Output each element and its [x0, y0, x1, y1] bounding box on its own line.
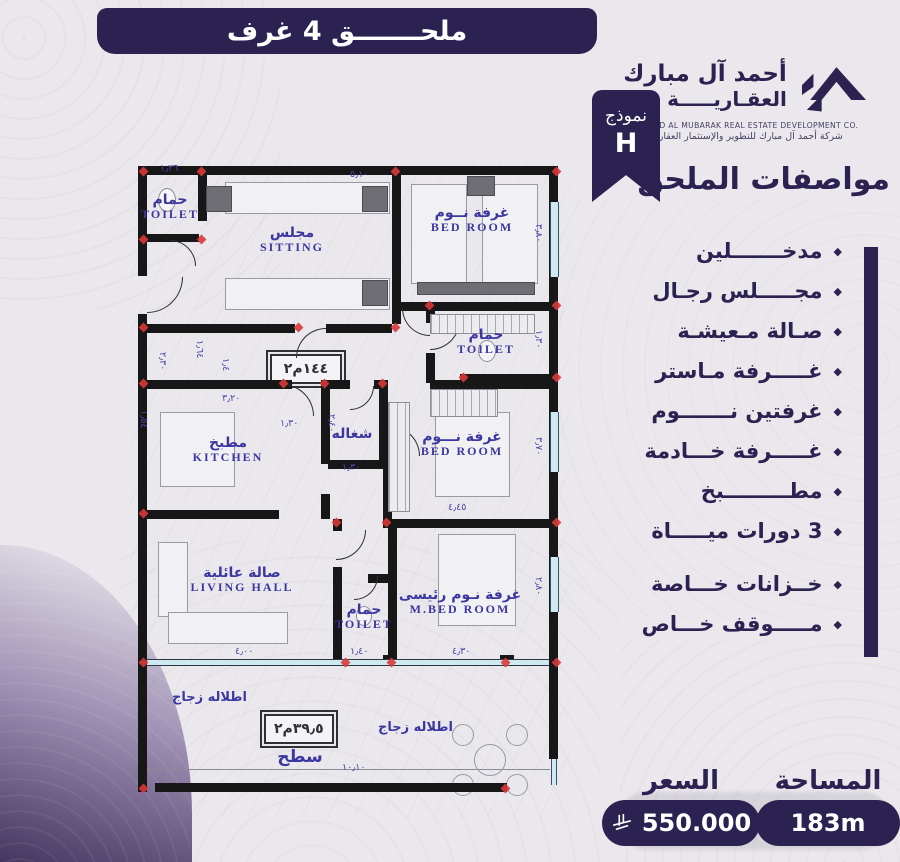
diamond-bullet-icon: ◆ [834, 366, 842, 377]
furniture-dresser [417, 282, 535, 295]
room-name-arabic: مجلس [260, 225, 324, 241]
spec-item-9: ◆خــزانات خـــاصة [602, 569, 842, 599]
floor-plan: ١٤٤م٢ ٣٩٫٥م٢ اطلاله زجاج اطلاله زجاج حما… [130, 162, 570, 817]
spec-item-10: ◆مـــــوقف خـــاص [602, 609, 842, 639]
wall [426, 353, 435, 383]
dimension-label-13: ٢٫٤٠ [326, 414, 337, 432]
dimension-label-1: ١٫٣٦ [160, 163, 178, 174]
dimension-label-12: ١٫٣٠ [280, 418, 298, 429]
room-label-maid-room: شغاله [332, 426, 373, 442]
wall [549, 659, 558, 759]
dimension-label-14: ١٫٣٠ [342, 462, 360, 473]
room-label-toilet-mid: حمامTOILET [457, 327, 515, 357]
room-name-arabic: سطح [277, 748, 323, 768]
spec-item-label: مجـــــلس رجـال [652, 279, 822, 303]
room-name-english: BED ROOM [421, 445, 503, 459]
room-label-bedroom-top: غرفة نــومBED ROOM [431, 205, 513, 235]
dimension-label-9: ١٫٥٤ [138, 410, 149, 428]
wall [147, 324, 295, 333]
spec-item-7: ◆مطـــــــــبخ [602, 476, 842, 506]
specs-accent-bar [864, 247, 878, 657]
door-arc [336, 530, 366, 560]
dimension-label-4: ١٫٣٠ [533, 330, 544, 348]
dimension-label-2: ٥٫١٠ [350, 169, 368, 180]
room-label-kitchen: مطبخKITCHEN [193, 435, 264, 465]
glass-view-label-1: اطلاله زجاج [172, 690, 247, 705]
room-name-arabic: حمام [335, 602, 393, 618]
wall [326, 324, 392, 333]
dimension-label-5: ٣٫٧٠ [533, 437, 544, 455]
wall [392, 175, 401, 324]
price-pill: 550.000 [602, 800, 760, 846]
terrace-chair [506, 724, 528, 746]
brand-name-arabic-line1: أحمد آل مبارك [623, 62, 787, 88]
room-name-english: TOILET [457, 343, 515, 357]
red-marker [391, 323, 401, 333]
terrace-railing [551, 759, 557, 785]
red-marker [294, 323, 304, 333]
dimension-label-15: ٤٫٤٥ [448, 502, 466, 513]
wall [155, 783, 507, 792]
area-label: المساحة [756, 766, 900, 796]
dimension-label-11: ٣٫٢٠ [222, 393, 240, 404]
wall [383, 519, 549, 528]
window [550, 202, 559, 277]
spec-item-label: مـــــوقف خـــاص [642, 612, 823, 636]
room-name-arabic: حمام [457, 327, 515, 343]
spec-item-5: ◆غرفتين نـــــــوم [602, 396, 842, 426]
dimension-label-7: ١٫٦٤ [194, 340, 205, 358]
wall [138, 314, 147, 668]
room-name-english: M.BED ROOM [399, 603, 521, 617]
model-badge-label: نموذج [592, 106, 660, 126]
room-name-arabic: غرفة نـوم رئيسى [399, 587, 521, 603]
title-banner: ملحـــــــق 4 غرف [97, 8, 597, 54]
page-title: ملحـــــــق 4 غرف [227, 16, 467, 47]
spec-item-label: صـالة مـعيشـة [677, 319, 822, 343]
specs-heading: مواصفات الملحق [620, 162, 890, 197]
diamond-bullet-icon: ◆ [834, 286, 842, 297]
terrace-chair [506, 774, 528, 796]
diamond-bullet-icon: ◆ [834, 579, 842, 590]
wall [328, 380, 350, 389]
room-name-arabic: حمام [141, 192, 199, 208]
furniture-side-table [362, 186, 388, 212]
furniture-nightstand [467, 176, 495, 196]
wall [147, 380, 292, 389]
dimension-label-10: ١٫٤ [220, 358, 231, 371]
room-name-arabic: صالة عائلية [190, 565, 293, 581]
diamond-bullet-icon: ◆ [834, 246, 842, 257]
diamond-bullet-icon: ◆ [834, 326, 842, 337]
room-name-english: TOILET [335, 618, 393, 632]
dimension-label-18: ٤٫٣٠ [452, 646, 470, 657]
spec-item-label: غـــــرفة مـاستر [655, 359, 822, 383]
flyer-page: { "page": { "bg": "#eae8ec", "accent": "… [0, 0, 900, 862]
room-label-toilet-bottom: حمامTOILET [335, 602, 393, 632]
spec-item-label: غـــــرفة خـــادمة [644, 439, 822, 463]
window [550, 412, 559, 472]
dimension-label-6: ٢٫٨٠ [533, 577, 544, 595]
room-label-toilet-top: حمامTOILET [141, 192, 199, 222]
door-arc [402, 308, 430, 336]
door-arc [147, 277, 183, 313]
door-arc [350, 386, 374, 410]
door-arc [354, 576, 378, 600]
room-label-roof-terrace: سطح [277, 748, 323, 768]
spec-item-label: مطـــــــــبخ [701, 479, 823, 503]
wall [430, 380, 549, 389]
dimension-label-8: ٢٫٣٠ [157, 352, 168, 370]
glass-view-label-2: اطلاله زجاج [378, 720, 453, 735]
room-name-arabic: غرفة نــوم [431, 205, 513, 221]
spec-list: ◆مدخـــــــلين◆مجـــــلس رجـال◆صـالة مـع… [602, 236, 842, 649]
room-name-arabic: شغاله [332, 426, 373, 442]
price-value: 550.000 [642, 809, 751, 837]
spec-item-label: 3 دورات ميـــــاة [651, 519, 822, 543]
terrace-chair [452, 724, 474, 746]
furniture-sofa [158, 542, 188, 617]
diamond-bullet-icon: ◆ [834, 406, 842, 417]
door-arc [296, 328, 326, 358]
red-marker [197, 235, 207, 245]
room-name-english: KITCHEN [193, 451, 264, 465]
dimension-label-19: ١٠٫١٠ [342, 762, 366, 773]
diamond-bullet-icon: ◆ [834, 526, 842, 537]
model-badge-value: H [592, 128, 660, 159]
area-badge-roof-value: ٣٩٫٥م٢ [274, 721, 324, 737]
spec-item-label: غرفتين نـــــــوم [651, 399, 822, 423]
door-arc [282, 384, 314, 416]
room-name-english: BED ROOM [431, 221, 513, 235]
dimension-label-17: ١٫٤٠ [350, 646, 368, 657]
furniture-side-table [362, 280, 388, 306]
spec-item-label: خــزانات خـــاصة [651, 572, 823, 596]
dimension-label-16: ٤٫٠٠ [235, 646, 253, 657]
room-label-bedroom-mid: غرفة نـــومBED ROOM [421, 429, 503, 459]
spec-item-4: ◆غـــــرفة مـاستر [602, 356, 842, 386]
diamond-bullet-icon: ◆ [834, 446, 842, 457]
spec-item-6: ◆غـــــرفة خـــادمة [602, 436, 842, 466]
room-name-english: LIVING HALL [190, 581, 293, 595]
window [550, 557, 559, 612]
furniture-wardrobe [388, 402, 410, 512]
furniture-side-table [206, 186, 232, 212]
saudi-riyal-icon [611, 812, 633, 834]
price-label: السعر [602, 766, 760, 796]
wall [321, 494, 330, 519]
furniture-stairs [430, 389, 498, 417]
area-pill: 183m [756, 800, 900, 846]
diamond-bullet-icon: ◆ [834, 486, 842, 497]
room-label-sitting: مجلسSITTING [260, 225, 324, 255]
door-arc [170, 240, 196, 266]
room-name-arabic: غرفة نـــوم [421, 429, 503, 445]
room-name-arabic: مطبخ [193, 435, 264, 451]
room-name-english: SITTING [260, 241, 324, 255]
wall [147, 510, 279, 519]
room-name-english: TOILET [141, 208, 199, 222]
spec-item-3: ◆صـالة مـعيشـة [602, 316, 842, 346]
dimension-label-3: ٣٫٨٠ [533, 224, 544, 242]
spec-item-1: ◆مدخـــــــلين [602, 236, 842, 266]
furniture-sofa [168, 612, 288, 644]
wall [388, 528, 397, 659]
area-badge-roof: ٣٩٫٥م٢ [264, 714, 334, 744]
area-badge-main-value: ١٤٤م٢ [284, 361, 328, 377]
wall [138, 659, 147, 792]
house-roof-icon [797, 56, 871, 116]
spec-item-8: ◆3 دورات ميـــــاة [602, 516, 842, 546]
spec-item-label: مدخـــــــلين [696, 239, 823, 263]
room-label-master-bedroom: غرفة نـوم رئيسىM.BED ROOM [399, 587, 521, 617]
area-value: 183m [790, 809, 865, 837]
terrace-table [474, 744, 506, 776]
room-label-living-hall: صالة عائليةLIVING HALL [190, 565, 293, 595]
spec-item-2: ◆مجـــــلس رجـال [602, 276, 842, 306]
diamond-bullet-icon: ◆ [834, 619, 842, 630]
